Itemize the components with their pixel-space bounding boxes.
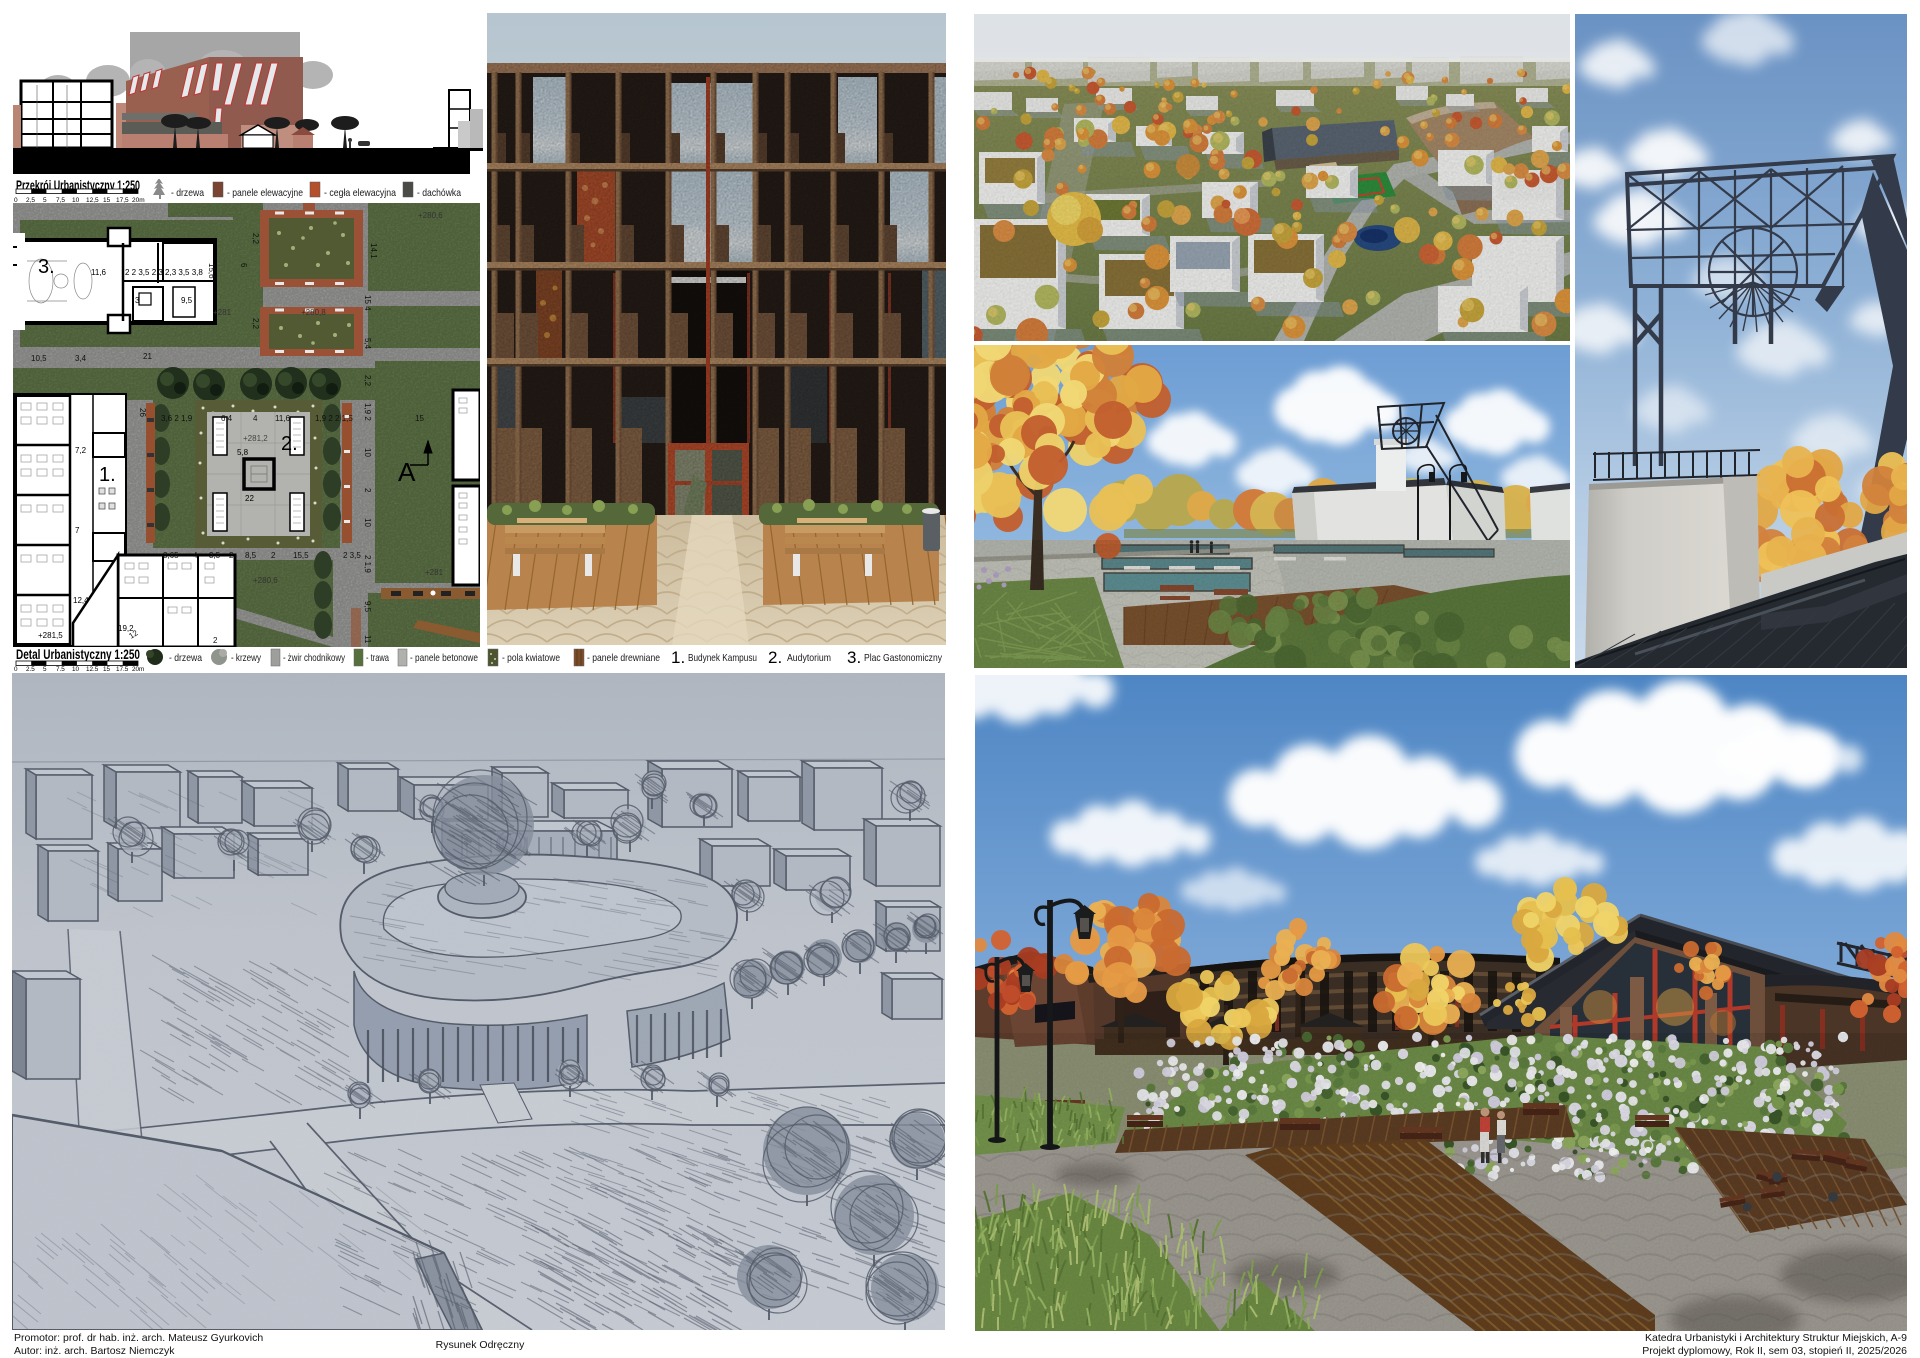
svg-text:3,5: 3,5 (209, 551, 221, 560)
svg-text:- panele elewacyjne: - panele elewacyjne (227, 187, 303, 199)
svg-text:11,6: 11,6 (275, 414, 291, 423)
svg-text:2: 2 (363, 488, 372, 493)
svg-text:10,5: 10,5 (31, 354, 47, 363)
svg-text:3.: 3. (847, 648, 861, 667)
svg-text:A: A (398, 457, 416, 487)
svg-text:2: 2 (229, 551, 234, 560)
svg-text:7,2: 7,2 (75, 446, 87, 455)
svg-text:- pola kwiatowe: - pola kwiatowe (502, 652, 560, 664)
svg-text:10: 10 (363, 518, 372, 527)
svg-text:9,5: 9,5 (363, 601, 372, 613)
svg-text:- panele betonowe: - panele betonowe (410, 652, 478, 664)
svg-text:7,5: 7,5 (56, 666, 65, 671)
svg-text:- dachówka: - dachówka (417, 187, 461, 199)
svg-text:2 1,9: 2 1,9 (363, 555, 372, 573)
svg-text:22: 22 (245, 494, 254, 503)
svg-text:5,8: 5,8 (237, 448, 249, 457)
svg-text:6,4: 6,4 (221, 414, 233, 423)
svg-text:7: 7 (75, 526, 80, 535)
svg-text:4: 4 (193, 551, 198, 560)
svg-text:21: 21 (143, 352, 152, 361)
svg-text:- panele drewniane: - panele drewniane (587, 652, 660, 664)
svg-text:5: 5 (43, 666, 47, 671)
svg-text:1,9 2 2 1,5: 1,9 2 2 1,5 (315, 414, 353, 423)
svg-text:5,4: 5,4 (363, 338, 372, 350)
svg-text:- cegła elewacyjna: - cegła elewacyjna (324, 187, 396, 199)
svg-text:11,6: 11,6 (91, 268, 107, 277)
svg-text:+280,6: +280,6 (253, 576, 278, 585)
svg-text:15: 15 (415, 414, 424, 423)
svg-text:1.: 1. (671, 648, 685, 667)
svg-text:Budynek Kampusu: Budynek Kampusu (688, 652, 757, 664)
svg-text:1,9 2: 1,9 2 (363, 403, 372, 421)
svg-text:2 3,5: 2 3,5 (343, 551, 361, 560)
svg-text:10: 10 (72, 666, 80, 671)
svg-text:15,6: 15,6 (207, 263, 216, 279)
svg-text:+280,8: +280,8 (301, 308, 326, 317)
svg-text:11: 11 (363, 635, 372, 644)
svg-text:10: 10 (363, 448, 372, 457)
svg-text:2,2: 2,2 (251, 318, 260, 330)
svg-text:2.: 2. (768, 648, 782, 667)
svg-text:3,4: 3,4 (75, 354, 87, 363)
svg-text:+280,6: +280,6 (418, 211, 443, 220)
svg-text:3,6 2 1,9: 3,6 2 1,9 (161, 414, 193, 423)
svg-text:Audytorium: Audytorium (787, 652, 831, 664)
svg-text:2,2: 2,2 (363, 375, 372, 387)
svg-text:2,5: 2,5 (26, 666, 35, 671)
svg-text:2: 2 (213, 636, 218, 645)
svg-text:15: 15 (103, 666, 111, 671)
svg-text:+281,2: +281,2 (243, 434, 268, 443)
svg-text:- drzewa: - drzewa (169, 652, 202, 664)
svg-text:- trawa: - trawa (366, 652, 389, 664)
svg-text:15 4: 15 4 (363, 295, 372, 311)
svg-text:3,65: 3,65 (163, 551, 179, 560)
svg-text:14,1: 14,1 (369, 243, 378, 259)
svg-text:+281: +281 (213, 308, 232, 317)
svg-text:- drzewa: - drzewa (171, 187, 204, 199)
svg-text:2.: 2. (281, 433, 298, 455)
svg-text:Detal Urbanistyczny 1:250: Detal Urbanistyczny 1:250 (16, 647, 140, 662)
svg-text:17,5: 17,5 (116, 666, 129, 671)
svg-text:6: 6 (239, 263, 248, 268)
svg-text:8,5: 8,5 (245, 551, 257, 560)
svg-text:3: 3 (135, 296, 140, 305)
svg-text:1.: 1. (99, 464, 116, 486)
svg-text:0: 0 (14, 666, 18, 671)
svg-text:2 2 3,5 2,3 2,3 3,5 3,8: 2 2 3,5 2,3 2,3 3,5 3,8 (125, 268, 203, 277)
svg-text:2,2: 2,2 (251, 233, 260, 245)
svg-text:26: 26 (138, 408, 147, 417)
svg-text:3.: 3. (38, 256, 55, 278)
svg-text:20m: 20m (132, 666, 144, 671)
svg-text:Plac Gastonomiczny: Plac Gastonomiczny (864, 652, 943, 664)
svg-text:2: 2 (271, 551, 276, 560)
svg-text:- żwir chodnikowy: - żwir chodnikowy (283, 652, 346, 664)
svg-text:+281,5: +281,5 (38, 631, 63, 640)
svg-text:- krzewy: - krzewy (231, 652, 262, 664)
svg-text:9,5: 9,5 (181, 296, 193, 305)
svg-text:+281: +281 (425, 568, 444, 577)
svg-text:15,5: 15,5 (293, 551, 309, 560)
svg-text:12,5: 12,5 (86, 666, 99, 671)
svg-text:4: 4 (253, 414, 258, 423)
